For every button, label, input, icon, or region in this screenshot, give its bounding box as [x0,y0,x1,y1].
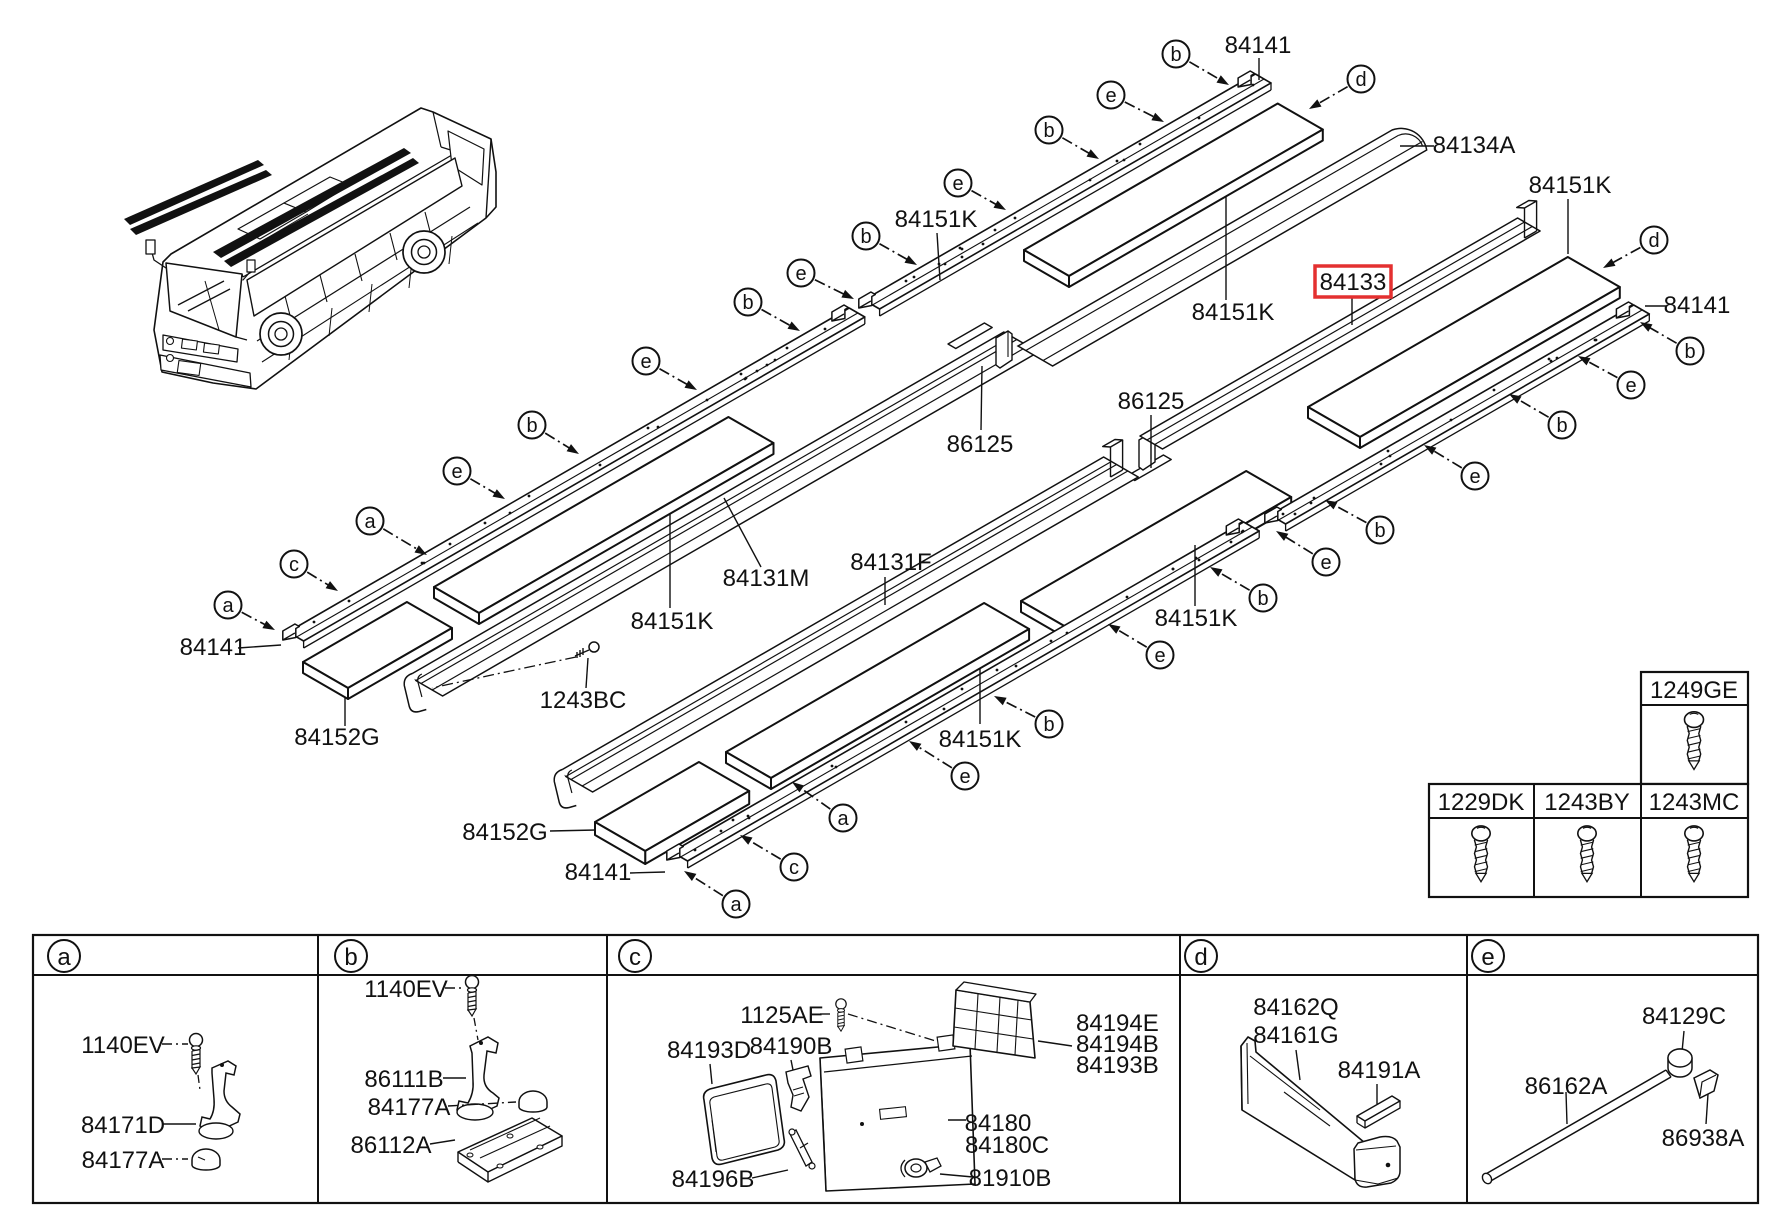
svg-text:84152G: 84152G [294,724,379,751]
svg-text:b: b [344,944,357,971]
svg-text:84141: 84141 [1225,32,1292,59]
svg-text:e: e [1320,552,1331,574]
svg-text:86125: 86125 [947,431,1014,458]
svg-text:e: e [952,173,963,195]
svg-text:1229DK: 1229DK [1438,789,1525,816]
svg-text:1243MC: 1243MC [1649,789,1740,816]
svg-text:84196B: 84196B [672,1166,755,1193]
svg-text:84141: 84141 [180,634,247,661]
svg-text:84161G: 84161G [1253,1022,1338,1049]
svg-text:84151K: 84151K [1155,605,1238,632]
svg-text:a: a [364,511,376,533]
svg-text:e: e [1481,944,1494,971]
svg-text:d: d [1648,230,1659,252]
svg-text:86938A: 86938A [1662,1125,1745,1152]
svg-text:b: b [1257,588,1268,610]
svg-text:84133: 84133 [1320,269,1387,296]
svg-text:84180C: 84180C [965,1132,1049,1159]
svg-text:e: e [1469,466,1480,488]
svg-text:b: b [1556,415,1567,437]
svg-text:b: b [1170,44,1181,66]
svg-text:e: e [1154,645,1165,667]
svg-text:e: e [959,766,970,788]
svg-text:a: a [222,595,234,617]
svg-text:b: b [1684,341,1695,363]
svg-text:e: e [640,351,651,373]
svg-text:a: a [57,944,71,971]
svg-text:84131M: 84131M [723,565,810,592]
svg-text:b: b [526,415,537,437]
svg-text:1249GE: 1249GE [1650,677,1738,704]
svg-text:84151K: 84151K [1192,299,1275,326]
svg-text:84141: 84141 [1664,292,1731,319]
svg-text:84151K: 84151K [939,726,1022,753]
svg-text:1125AE: 1125AE [740,1002,824,1029]
svg-text:84151K: 84151K [895,206,978,233]
svg-text:84177A: 84177A [368,1094,451,1121]
svg-text:c: c [629,944,641,971]
svg-text:e: e [795,263,806,285]
svg-text:e: e [1625,375,1636,397]
svg-text:86125: 86125 [1118,388,1185,415]
svg-text:84131F: 84131F [850,549,931,576]
svg-text:84152G: 84152G [462,819,547,846]
svg-text:84141: 84141 [565,859,632,886]
svg-text:1243BY: 1243BY [1544,789,1629,816]
svg-text:84129C: 84129C [1642,1003,1726,1030]
svg-text:c: c [789,857,799,879]
svg-text:81910B: 81910B [969,1165,1052,1192]
svg-text:84193B: 84193B [1076,1052,1159,1079]
svg-text:84151K: 84151K [631,608,714,635]
svg-text:b: b [1374,520,1385,542]
svg-text:b: b [742,292,753,314]
svg-text:e: e [1105,85,1116,107]
svg-text:86112A: 86112A [351,1132,432,1159]
svg-text:84190B: 84190B [750,1033,833,1060]
svg-text:b: b [1043,714,1054,736]
svg-text:1243BC: 1243BC [540,687,627,714]
svg-text:a: a [837,808,849,830]
svg-text:84177A: 84177A [82,1147,165,1174]
svg-text:b: b [860,226,871,248]
svg-text:c: c [289,554,299,576]
svg-text:1140EV: 1140EV [364,976,448,1003]
svg-text:84171D: 84171D [81,1112,165,1139]
svg-text:84151K: 84151K [1529,172,1612,199]
svg-text:84162Q: 84162Q [1253,994,1338,1021]
svg-text:84193D: 84193D [667,1037,751,1064]
svg-text:e: e [451,461,462,483]
svg-text:d: d [1355,69,1366,91]
svg-text:84191A: 84191A [1338,1057,1421,1084]
svg-text:84134A: 84134A [1433,132,1516,159]
svg-text:86111B: 86111B [364,1066,443,1093]
svg-text:a: a [730,894,742,916]
svg-text:b: b [1043,120,1054,142]
svg-text:1140EV: 1140EV [81,1032,165,1059]
svg-text:d: d [1194,944,1207,971]
